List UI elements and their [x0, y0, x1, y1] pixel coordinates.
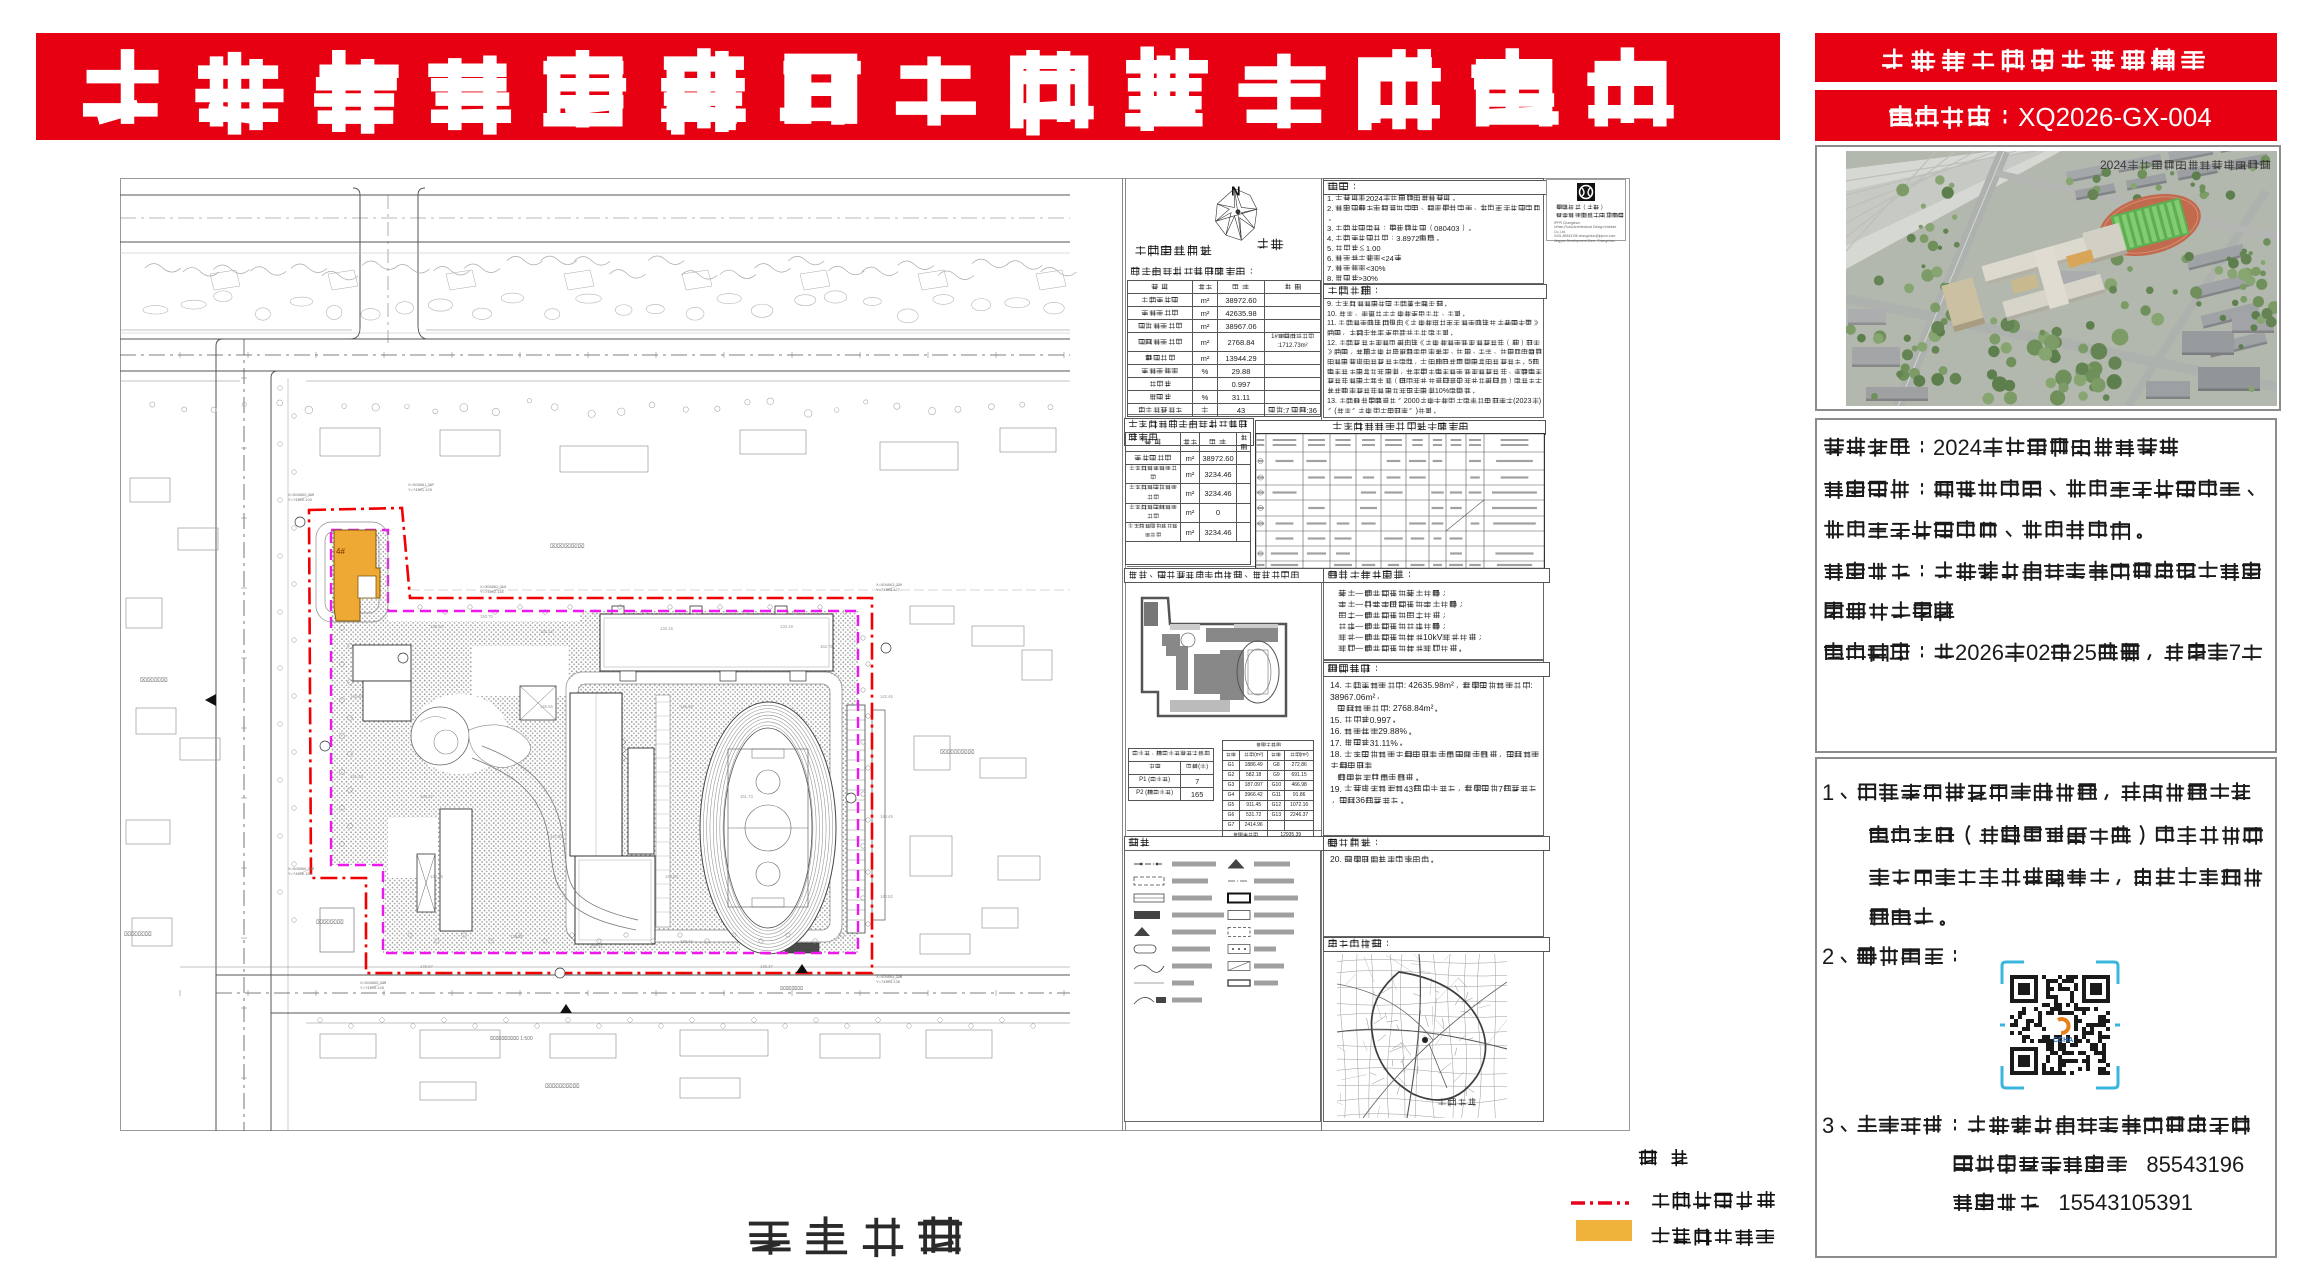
svg-text:137.31: 137.31: [590, 944, 603, 949]
svg-text:143.49: 143.49: [880, 814, 893, 819]
svg-text:135.25: 135.25: [430, 874, 443, 879]
svg-text:Y=74593.127: Y=74593.127: [876, 587, 901, 592]
svg-text:N: N: [1231, 183, 1240, 198]
svg-text:145.55: 145.55: [540, 704, 553, 709]
svg-text:⌧⌧⌧⌧⌧: ⌧⌧⌧⌧⌧: [550, 543, 585, 550]
svg-text:⌧⌧⌧⌧⌧ 1:500: ⌧⌧⌧⌧⌧ 1:500: [490, 1036, 533, 1042]
svg-text:⌧⌧⌧⌧: ⌧⌧⌧⌧: [780, 986, 803, 992]
svg-text:147.61: 147.61: [550, 834, 563, 839]
svg-text:Y=74596.154: Y=74596.154: [288, 871, 313, 876]
svg-text:150.70: 150.70: [480, 614, 493, 619]
svg-text:⌧⌧⌧⌧⌧: ⌧⌧⌧⌧⌧: [545, 1083, 580, 1090]
svg-text:142.46: 142.46: [880, 694, 893, 699]
svg-text:140.40: 140.40: [350, 694, 363, 699]
svg-text:Y=74594.136: Y=74594.136: [876, 979, 901, 984]
svg-text:146.58: 146.58: [680, 704, 693, 709]
svg-text:144.52: 144.52: [880, 894, 893, 899]
svg-text:⌧⌧⌧⌧: ⌧⌧⌧⌧: [316, 919, 344, 926]
svg-text:Y=74592.118: Y=74592.118: [480, 589, 504, 594]
svg-text:131.13: 131.13: [540, 629, 553, 634]
svg-text:⌧⌧⌧⌧: ⌧⌧⌧⌧: [140, 677, 168, 684]
svg-text:130.10: 130.10: [430, 624, 443, 629]
svg-text:138.34: 138.34: [680, 939, 693, 944]
svg-text:CCHA: CCHA: [2053, 1037, 2073, 1044]
svg-text:⌧⌧⌧⌧: ⌧⌧⌧⌧: [124, 931, 152, 938]
svg-text:148.64: 148.64: [665, 874, 678, 879]
svg-text:152.76: 152.76: [820, 644, 833, 649]
svg-text:151.73: 151.73: [740, 794, 753, 799]
svg-text:133.19: 133.19: [780, 624, 793, 629]
svg-text:132.16: 132.16: [660, 626, 673, 631]
svg-text:4#: 4#: [336, 547, 345, 556]
svg-text:134.22: 134.22: [420, 794, 433, 799]
svg-text:Y=74595.145: Y=74595.145: [360, 985, 385, 990]
svg-text:Y=74590.100: Y=74590.100: [288, 497, 313, 502]
svg-text:141.43: 141.43: [350, 774, 363, 779]
svg-text:136.28: 136.28: [510, 934, 523, 939]
svg-text:Y=74591.109: Y=74591.109: [408, 487, 433, 492]
svg-text:⌧⌧⌧⌧⌧: ⌧⌧⌧⌧⌧: [940, 749, 975, 756]
svg-text:149.67: 149.67: [420, 964, 433, 969]
svg-text:139.37: 139.37: [760, 964, 773, 969]
